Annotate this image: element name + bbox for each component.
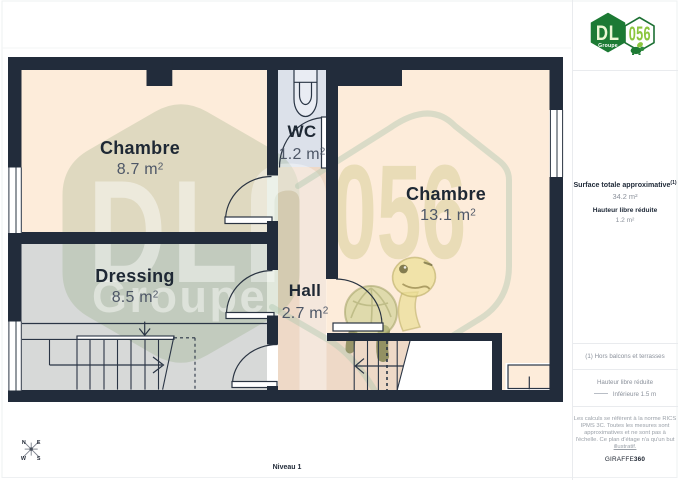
svg-text:E: E — [37, 440, 41, 446]
svg-text:N: N — [22, 440, 26, 446]
svg-text:S: S — [37, 456, 41, 462]
svg-text:W: W — [21, 456, 27, 462]
svg-text:056: 056 — [629, 22, 651, 45]
svg-text:Groupe: Groupe — [598, 43, 618, 49]
